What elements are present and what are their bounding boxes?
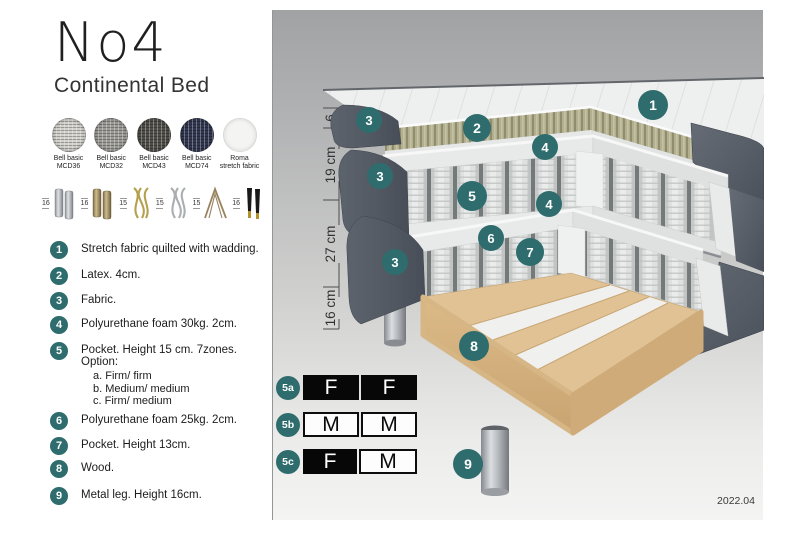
fabric-swatch-mcd74: Bell basicMCD74: [176, 118, 217, 172]
fabric-swatch-mcd32: Bell basicMCD32: [91, 118, 132, 172]
leg-cylinder-brass-icon: [90, 186, 116, 220]
leg-option-cylinder-brass: 16: [81, 186, 117, 220]
svg-text:2: 2: [473, 120, 481, 136]
firmness-badge: 5c: [276, 450, 300, 474]
fabric-swatch-roma: Romastretch fabric: [219, 118, 260, 172]
list-item: 8 Wood.: [50, 460, 268, 478]
item-number-badge: 3: [50, 292, 68, 310]
leg-option-twisted-gold: 15: [119, 186, 153, 220]
fabric-swatch-mcd36: Bell basicMCD36: [48, 118, 89, 172]
dimension-labels: 6 19 cm 27 cm 16 cm: [323, 114, 338, 326]
callout-3c: 3: [382, 249, 408, 275]
svg-text:9: 9: [464, 456, 472, 472]
callout-4b: 4: [536, 191, 562, 217]
item-number-badge: 6: [50, 412, 68, 430]
item-number-badge: 4: [50, 316, 68, 334]
list-item: 4 Polyurethane foam 30kg. 2cm.: [50, 316, 268, 334]
firmness-row-5b: 5b M M: [276, 412, 417, 437]
svg-text:1: 1: [649, 97, 657, 113]
firmness-bar: F M: [303, 449, 417, 474]
firmness-badge: 5a: [276, 376, 300, 400]
callout-5: 5: [457, 181, 487, 211]
svg-text:3: 3: [391, 255, 398, 270]
fabric-swatch-icon: [137, 118, 171, 152]
list-item: 7 Pocket. Height 13cm.: [50, 437, 268, 455]
leg-tapered-black-gold-icon: [242, 186, 264, 220]
list-item: 3 Fabric.: [50, 292, 268, 310]
metal-leg-front: [481, 426, 509, 497]
item-number-badge: 5: [50, 342, 68, 360]
dim-label-27: 27 cm: [323, 226, 338, 263]
list-item: 9 Metal leg. Height 16cm.: [50, 487, 268, 505]
page-subtitle: Continental Bed: [54, 74, 209, 98]
leg-cylinder-silver-icon: [52, 186, 78, 220]
page-title: No4: [54, 16, 209, 70]
bed-cutaway-panel: 6 19 cm 27 cm 16 cm: [272, 10, 763, 520]
version-label: 2022.04: [717, 495, 755, 507]
item-number-badge: 2: [50, 267, 68, 285]
dim-label-19: 19 cm: [323, 147, 338, 184]
fabric-swatch-icon: [180, 118, 214, 152]
firmness-bar: F F: [303, 375, 417, 400]
leg-twisted-silver-icon: [166, 186, 190, 220]
firmness-cell: M: [303, 412, 359, 437]
firmness-bar: M M: [303, 412, 417, 437]
firmness-badge: 5b: [276, 413, 300, 437]
callout-9: 9: [453, 449, 483, 479]
leg-twisted-gold-icon: [129, 186, 153, 220]
item-number-badge: 7: [50, 437, 68, 455]
title-block: No4 Continental Bed: [54, 16, 209, 98]
leg-option-tapered-black-gold: 16: [232, 186, 264, 220]
firmness-row-5c: 5c F M: [276, 449, 417, 474]
item-number-badge: 1: [50, 241, 68, 259]
leg-option-hairpin: 15: [193, 186, 230, 220]
item-number-badge: 8: [50, 460, 68, 478]
pocket-options: a. Firm/ firm b. Medium/ medium c. Firm/…: [93, 370, 268, 408]
leg-option-twisted-silver: 15: [156, 186, 190, 220]
firmness-cell: M: [361, 412, 417, 437]
fabric-swatch-icon: [223, 118, 257, 152]
firmness-cell: F: [303, 449, 357, 474]
leg-option-cylinder-silver: 16: [42, 186, 78, 220]
callout-8: 8: [459, 331, 489, 361]
parts-list: 1 Stretch fabric quilted with wadding. 2…: [50, 240, 268, 505]
leg-options: 16 16 15: [42, 186, 264, 220]
callout-6: 6: [478, 225, 504, 251]
list-item: 2 Latex. 4cm.: [50, 267, 268, 285]
left-column: No4 Continental Bed Bell basicMCD36 Bell…: [0, 0, 272, 533]
svg-text:7: 7: [526, 245, 533, 260]
item-number-badge: 9: [50, 487, 68, 505]
callout-3a: 3: [356, 107, 382, 133]
fabric-swatch-icon: [52, 118, 86, 152]
callout-2: 2: [463, 114, 491, 142]
firmness-cell: F: [303, 375, 359, 400]
callout-7: 7: [516, 238, 544, 266]
svg-text:5: 5: [468, 188, 476, 204]
list-item: 6 Polyurethane foam 25kg. 2cm.: [50, 412, 268, 430]
firmness-cell: F: [361, 375, 417, 400]
callout-4a: 4: [532, 134, 558, 160]
callout-1: 1: [638, 90, 668, 120]
dim-label-16: 16 cm: [323, 290, 338, 327]
leg-hairpin-icon: [202, 186, 229, 220]
svg-text:3: 3: [365, 113, 372, 128]
svg-text:8: 8: [470, 338, 478, 354]
svg-text:4: 4: [545, 197, 553, 212]
list-item: 5 Pocket. Height 15 cm. 7zones. Option:: [50, 342, 268, 368]
callout-3b: 3: [367, 163, 393, 189]
firmness-row-5a: 5a F F: [276, 375, 417, 400]
firmness-cell: M: [359, 449, 417, 474]
fabric-swatch-icon: [94, 118, 128, 152]
svg-text:3: 3: [376, 169, 383, 184]
svg-text:6: 6: [487, 231, 494, 246]
list-item: 1 Stretch fabric quilted with wadding.: [50, 241, 268, 259]
bed-cutaway-illustration: 6 19 cm 27 cm 16 cm: [273, 10, 764, 520]
fabric-swatch-mcd43: Bell basicMCD43: [134, 118, 175, 172]
svg-text:4: 4: [541, 140, 549, 155]
fabric-swatches: Bell basicMCD36 Bell basicMCD32 Bell bas…: [48, 118, 260, 172]
spec-sheet: No4 Continental Bed Bell basicMCD36 Bell…: [0, 0, 800, 533]
